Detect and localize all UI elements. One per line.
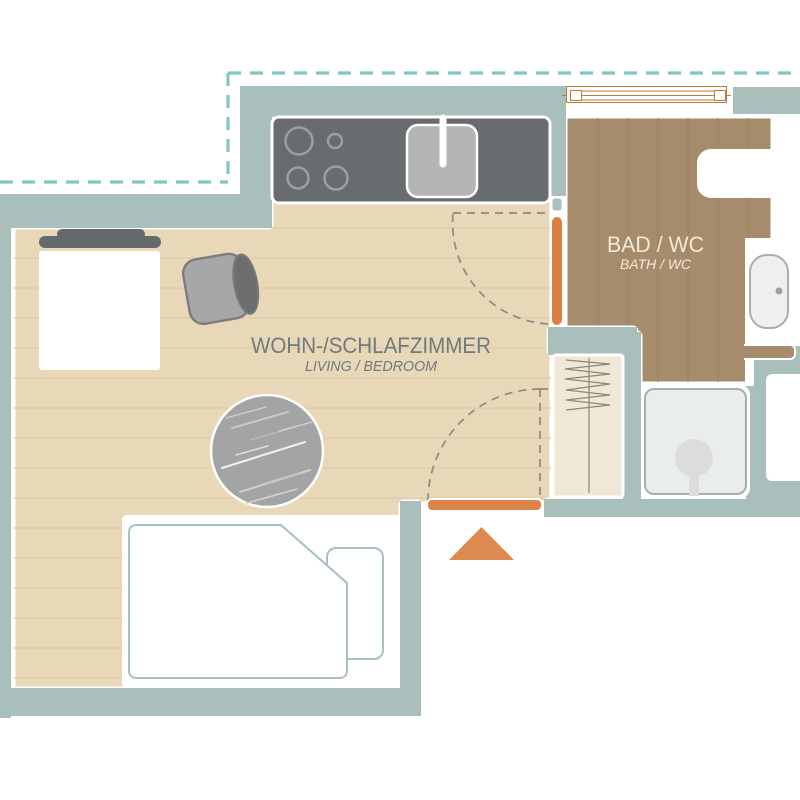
svg-text:BATH / WC: BATH / WC (620, 256, 692, 272)
svg-text:LIVING / BEDROOM: LIVING / BEDROOM (305, 359, 438, 375)
svg-text:WOHN-/SCHLAFZIMMER: WOHN-/SCHLAFZIMMER (251, 333, 491, 358)
svg-text:BAD / WC: BAD / WC (607, 232, 704, 257)
